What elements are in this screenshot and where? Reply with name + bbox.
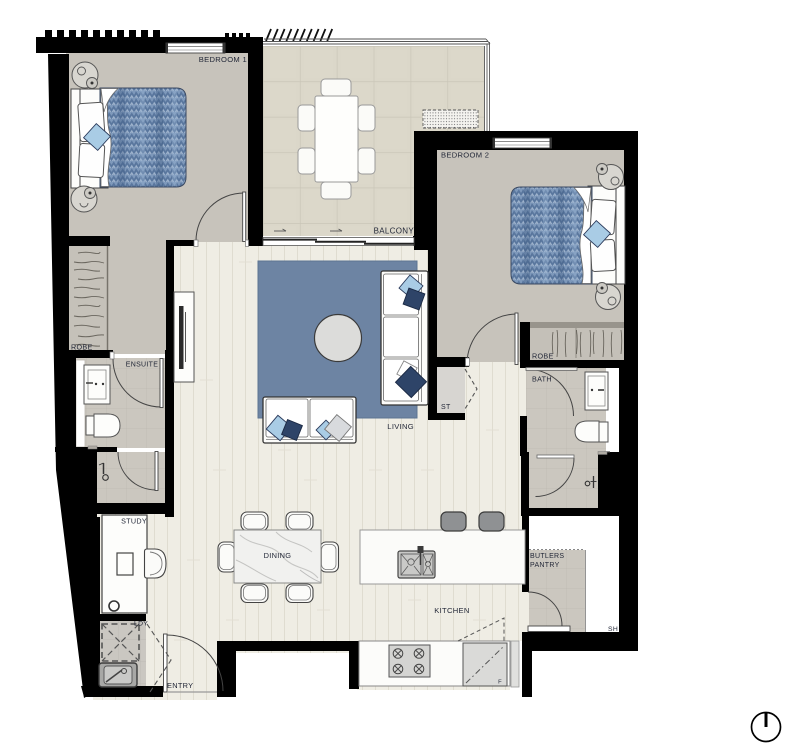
svg-text:ENTRY: ENTRY <box>167 681 193 690</box>
svg-text:ROBE: ROBE <box>532 352 554 361</box>
svg-text:ROBE: ROBE <box>71 343 93 352</box>
svg-text:BUTLERS: BUTLERS <box>530 553 564 560</box>
svg-text:PANTRY: PANTRY <box>530 562 560 569</box>
svg-text:BALCONY: BALCONY <box>374 227 415 236</box>
svg-text:SH: SH <box>608 626 618 633</box>
svg-text:KITCHEN: KITCHEN <box>434 606 469 615</box>
svg-text:F: F <box>498 680 502 686</box>
svg-text:ENSUITE: ENSUITE <box>126 362 158 369</box>
svg-text:DINING: DINING <box>264 551 292 560</box>
svg-text:LDY: LDY <box>134 621 148 628</box>
svg-text:ST: ST <box>441 404 451 411</box>
svg-text:LIVING: LIVING <box>387 422 414 431</box>
svg-text:BEDROOM 1: BEDROOM 1 <box>199 55 247 64</box>
svg-text:BEDROOM 2: BEDROOM 2 <box>441 151 489 160</box>
svg-text:BATH: BATH <box>532 375 552 384</box>
svg-text:STUDY: STUDY <box>121 517 147 526</box>
